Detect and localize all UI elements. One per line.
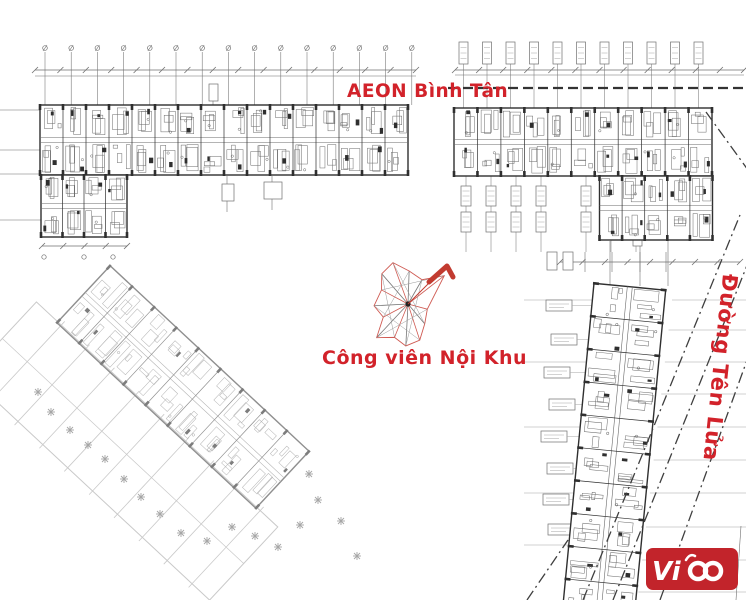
vico-logo-art: Vi (650, 551, 734, 587)
tree-marker-icon (177, 529, 185, 537)
north-arrow-icon (429, 266, 453, 282)
tree-marker-icon (84, 441, 92, 449)
tree-marker-icon (137, 493, 145, 501)
tree-marker-icon (34, 388, 42, 396)
aeon-label: AEON Bình Tân (347, 83, 508, 102)
tree-marker-icon (203, 537, 211, 545)
tree-marker-icon (66, 426, 74, 434)
block-d-diagonal (55, 264, 310, 510)
block-b-ext (598, 175, 714, 241)
logo-flame-icon (686, 555, 695, 560)
tree-marker-icon (353, 552, 361, 560)
tree-marker-icon (305, 470, 313, 478)
ghost-grid (0, 298, 281, 600)
vico-logo: Vi (646, 548, 738, 590)
tree-marker-icon (274, 543, 282, 551)
block-b-bar (453, 107, 714, 177)
block-a-bar (39, 104, 410, 176)
tree-marker-icon (120, 475, 128, 483)
logo-text: Vi (652, 557, 682, 587)
tree-marker-icon (314, 496, 322, 504)
tree-marker-icon (337, 517, 345, 525)
site-plan: AEON Bình Tân Công viên Nội Khu Đường Tê… (0, 0, 746, 600)
tree-marker-icon (296, 521, 304, 529)
tree-marker-icon (101, 455, 109, 463)
tree-marker-icon (251, 532, 259, 540)
tree-marker-icon (47, 408, 55, 416)
tree-marker-icon (156, 510, 164, 518)
block-a-wing (40, 174, 129, 238)
park-label: Công viên Nội Khu (322, 349, 527, 368)
tree-marker-icon (228, 523, 236, 531)
